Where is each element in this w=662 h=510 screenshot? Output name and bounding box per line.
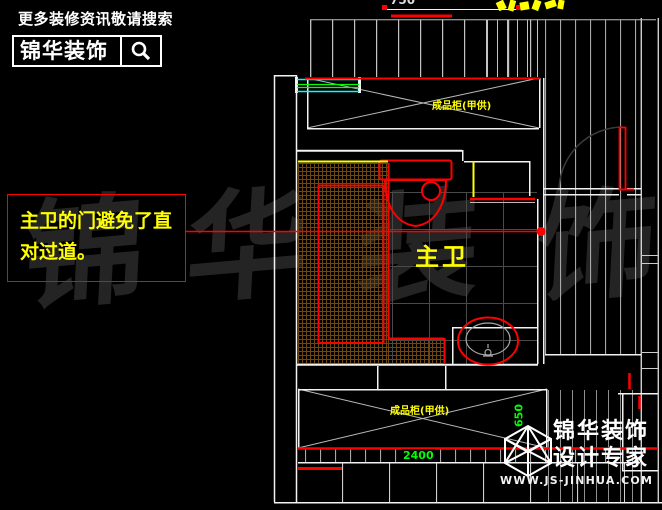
callout-note: 主卫的门避免了直 对过道。 <box>7 194 186 282</box>
dim-bottom-2400: 2400 <box>402 449 435 462</box>
search-icon <box>122 40 160 62</box>
brand-logo-box: 锦华装饰 <box>12 35 162 67</box>
top-cabinet-label: 成品柜(甲供) <box>432 97 491 112</box>
bathtub <box>319 186 384 344</box>
footer-brand-subtitle: 设计专家 <box>553 448 649 470</box>
callout-line2: 对过道。 <box>20 237 185 268</box>
cube-logo-icon <box>502 424 554 478</box>
dim-top-750: 750 <box>390 0 415 7</box>
callout-line1: 主卫的门避免了直 <box>20 206 185 237</box>
brand-logo-text: 锦华装饰 <box>14 41 120 62</box>
footer-website: WWW.JS-JINHUA.COM <box>500 474 653 487</box>
footer-brand-name: 锦华装饰 <box>553 421 649 443</box>
room-label-master-bath: 主卫 <box>415 237 469 272</box>
window-symbol <box>297 80 359 92</box>
leader-dot <box>537 227 546 236</box>
floorplan-image: 锦 华 装 饰 <box>0 0 662 510</box>
bottom-cabinet-label: 成品柜(甲供) <box>390 402 449 417</box>
closet-hanging-hatch <box>310 20 539 77</box>
promo-tagline: 更多装修资讯敬请搜索 <box>18 8 173 29</box>
